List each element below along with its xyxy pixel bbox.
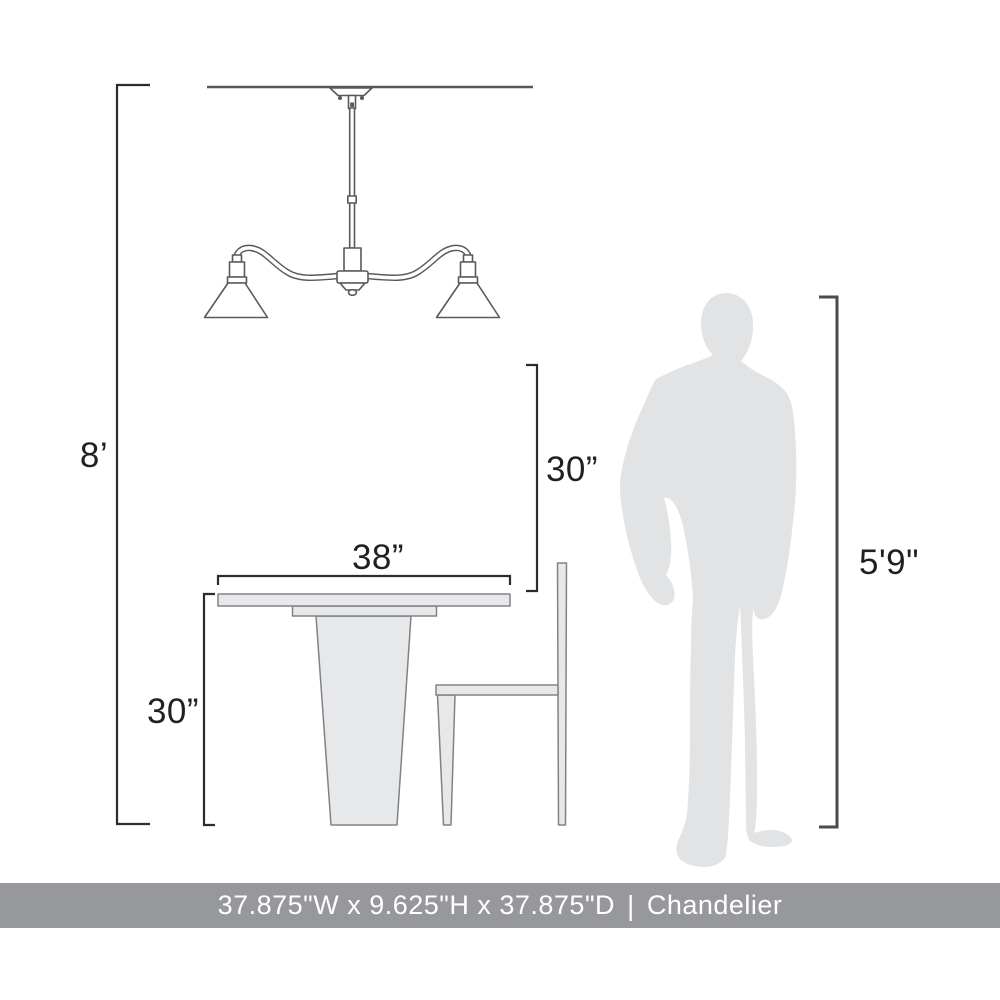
left-lamp-shade	[205, 255, 268, 318]
canopy	[330, 88, 372, 96]
table-width-label: 38”	[352, 538, 404, 578]
ceiling-height-bracket	[117, 85, 150, 824]
hang-clearance-bracket	[526, 365, 537, 591]
diagram-canvas	[0, 0, 1000, 1000]
chair-front-leg	[438, 695, 456, 825]
person-height-label: 5'9"	[859, 543, 919, 583]
product-name-text: Chandelier	[647, 890, 783, 921]
person-height-bracket	[819, 297, 837, 827]
table-height-label: 30”	[147, 692, 199, 732]
chandelier-drawing	[205, 88, 500, 318]
table-top	[218, 594, 510, 606]
person-silhouette	[620, 293, 796, 867]
dimension-diagram: 8’ 38” 30” 30” 5'9" 37.875"W x 9.625"H x…	[0, 0, 1000, 1000]
product-info-bar: 37.875"W x 9.625"H x 37.875"D | Chandeli…	[0, 883, 1000, 928]
separator: |	[627, 890, 635, 922]
right-lamp-shade	[437, 255, 500, 318]
product-dimensions-text: 37.875"W x 9.625"H x 37.875"D	[218, 890, 615, 921]
table-pedestal	[316, 616, 411, 825]
finial	[349, 290, 357, 296]
stem-rod	[350, 108, 355, 248]
center-hub	[337, 271, 368, 283]
hang-clearance-label: 30”	[546, 450, 598, 490]
chair-back	[558, 563, 567, 825]
dining-table-drawing	[218, 594, 510, 825]
chair-seat	[436, 685, 558, 695]
table-height-bracket	[204, 594, 215, 825]
center-body	[344, 248, 361, 271]
ceiling-height-label: 8’	[80, 436, 108, 476]
